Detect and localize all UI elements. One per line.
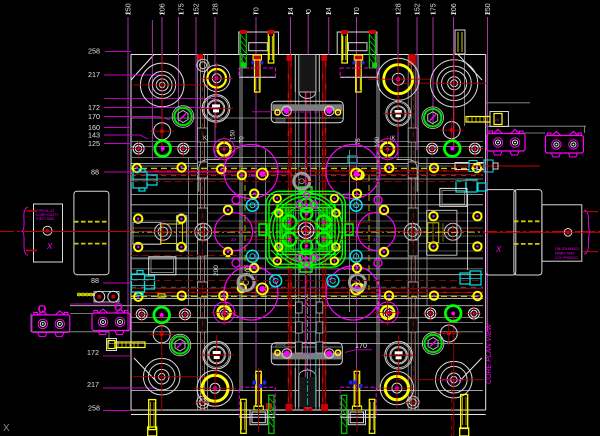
svg-text:88: 88 bbox=[91, 276, 99, 285]
svg-text:152: 152 bbox=[194, 3, 201, 15]
svg-text:X: X bbox=[46, 242, 53, 251]
svg-text:70: 70 bbox=[254, 7, 261, 15]
svg-text:172: 172 bbox=[87, 348, 99, 357]
svg-text:258: 258 bbox=[88, 47, 100, 56]
svg-text:24a: 24a bbox=[344, 266, 352, 271]
svg-text:206: 206 bbox=[160, 3, 167, 15]
svg-text:250: 250 bbox=[485, 3, 492, 15]
svg-text:128: 128 bbox=[396, 3, 403, 15]
svg-text:24: 24 bbox=[495, 118, 499, 122]
svg-text:258: 258 bbox=[88, 404, 100, 413]
svg-text:24: 24 bbox=[231, 237, 237, 242]
svg-text:217: 217 bbox=[87, 380, 99, 389]
svg-text:175: 175 bbox=[431, 3, 438, 15]
svg-text:88: 88 bbox=[91, 168, 99, 177]
svg-text:K|: K| bbox=[203, 136, 209, 142]
svg-text:CYL+PMOOG: CYL+PMOOG bbox=[555, 256, 578, 260]
svg-text:125: 125 bbox=[88, 139, 100, 148]
svg-text:EJECT SIDE: EJECT SIDE bbox=[36, 217, 54, 221]
svg-text:175: 175 bbox=[179, 3, 186, 15]
svg-text:172: 172 bbox=[88, 103, 100, 112]
svg-text:128: 128 bbox=[213, 3, 220, 15]
svg-text:X: X bbox=[3, 423, 10, 434]
svg-text:24: 24 bbox=[373, 237, 379, 242]
svg-text:170: 170 bbox=[355, 341, 367, 350]
svg-text:24b: 24b bbox=[343, 192, 351, 197]
svg-text:152: 152 bbox=[415, 3, 422, 15]
svg-text:POS#2 SET: POS#2 SET bbox=[442, 378, 464, 383]
svg-text:NX80+ M42: NX80+ M42 bbox=[555, 252, 574, 256]
svg-text:X: X bbox=[495, 245, 502, 254]
svg-text:24: 24 bbox=[288, 7, 295, 15]
svg-text:150: 150 bbox=[231, 129, 237, 140]
svg-text:75: 75 bbox=[356, 138, 362, 145]
svg-text:70: 70 bbox=[354, 7, 361, 15]
svg-text:ON-3214MD21: ON-3214MD21 bbox=[555, 247, 579, 251]
svg-text:70: 70 bbox=[240, 136, 246, 143]
svg-text:250: 250 bbox=[126, 3, 133, 15]
svg-text:206: 206 bbox=[451, 3, 458, 15]
svg-text:24b: 24b bbox=[246, 264, 254, 269]
svg-text:CORE PLAN VIEW: CORE PLAN VIEW bbox=[486, 322, 493, 384]
svg-text:0: 0 bbox=[306, 9, 313, 13]
svg-text:217: 217 bbox=[88, 70, 100, 79]
svg-text:24: 24 bbox=[326, 7, 333, 15]
svg-text:24a: 24a bbox=[248, 173, 256, 178]
svg-text:170: 170 bbox=[88, 112, 100, 121]
svg-text:200: 200 bbox=[213, 265, 220, 276]
